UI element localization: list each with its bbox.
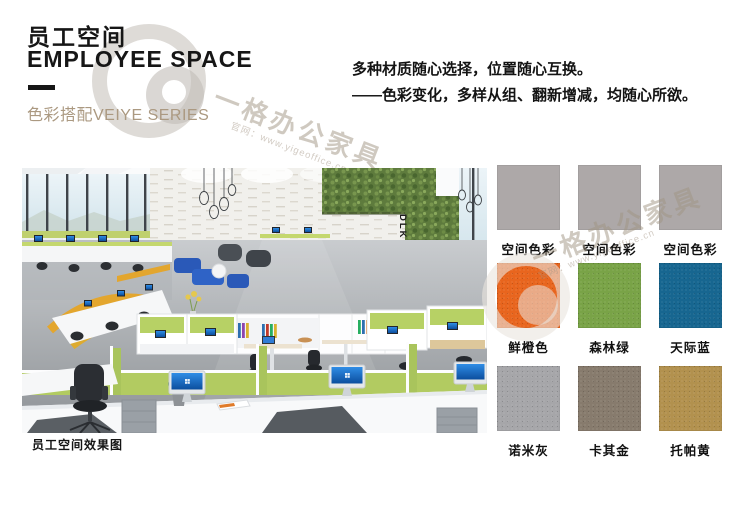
- swatch-tile: [659, 165, 722, 230]
- swatch-tile: [497, 165, 560, 230]
- brand-watermark-text: 一格办公家具: [209, 78, 390, 177]
- image-caption: 员工空间效果图: [32, 436, 123, 453]
- window-wall-left: [22, 174, 150, 241]
- swatch-tile: [659, 263, 722, 328]
- swatch-orange: 鲜橙色: [497, 263, 560, 356]
- swatch-label: 托帕黄: [659, 440, 722, 459]
- swatch-label: 卡其金: [578, 440, 641, 459]
- swatch-khaki-gold: 卡其金: [578, 366, 641, 459]
- brand-logo-ring: [92, 24, 206, 138]
- swatch-topaz-yellow: 托帕黄: [659, 366, 722, 459]
- swatch-nomi-gray: 诺米灰: [497, 366, 560, 459]
- swatch-tile: [497, 263, 560, 328]
- swatch-label: 空间色彩: [659, 239, 722, 258]
- swatch-tile: [578, 263, 641, 328]
- swatch-forest-green: 森林绿: [578, 263, 641, 356]
- tagline: 多种材质随心选择，位置随心互换。 ——色彩变化，多样从组、翻新增减，均随心所欲。: [352, 57, 697, 109]
- page-header: 员工空间 EMPLOYEE SPACE 色彩搭配VEIYE SERIES 多种材…: [0, 0, 740, 160]
- office-photo: DLK.2018: [22, 168, 487, 433]
- swatch-label: 鲜橙色: [497, 337, 560, 356]
- swatch-tile: [659, 366, 722, 431]
- brand-watermark-top: 一格办公家具 官网：www.yigeoffice.cn: [88, 20, 398, 170]
- swatch-sky-blue: 天际蓝: [659, 263, 722, 356]
- tagline-line1: 多种材质随心选择，位置随心互换。: [352, 57, 697, 83]
- swatch-label: 空间色彩: [578, 239, 641, 258]
- swatch-label: 诺米灰: [497, 440, 560, 459]
- tagline-line2: ——色彩变化，多样从组、翻新增减，均随心所欲。: [352, 83, 697, 109]
- brand-logo-dot: [146, 66, 204, 124]
- catalog-page: 一格办公家具 官网：www.yigeoffice.cn 员工空间 EMPLOYE…: [0, 0, 740, 524]
- page-title-zh: 员工空间: [27, 18, 127, 52]
- title-dash-rule: [28, 85, 55, 90]
- swatch-space-color-1: 空间色彩: [497, 165, 560, 258]
- office-scene-svg: DLK.2018: [22, 168, 487, 433]
- brand-watermark-site: 官网：www.yigeoffice.cn: [229, 118, 350, 175]
- swatch-space-color-2: 空间色彩: [578, 165, 641, 258]
- swatch-label: 空间色彩: [497, 239, 560, 258]
- brand-logo-dot-inner: [162, 80, 186, 104]
- swatch-space-color-3: 空间色彩: [659, 165, 722, 258]
- swatch-tile: [578, 165, 641, 230]
- series-label: 色彩搭配VEIYE SERIES: [27, 101, 209, 125]
- swatch-label: 森林绿: [578, 337, 641, 356]
- swatch-label: 天际蓝: [659, 337, 722, 356]
- swatch-tile: [578, 366, 641, 431]
- color-swatch-grid: 空间色彩 空间色彩 空间色彩 鲜橙色 森林绿 天际蓝: [497, 165, 723, 465]
- swatch-tile: [497, 366, 560, 431]
- page-title-en: EMPLOYEE SPACE: [27, 46, 253, 73]
